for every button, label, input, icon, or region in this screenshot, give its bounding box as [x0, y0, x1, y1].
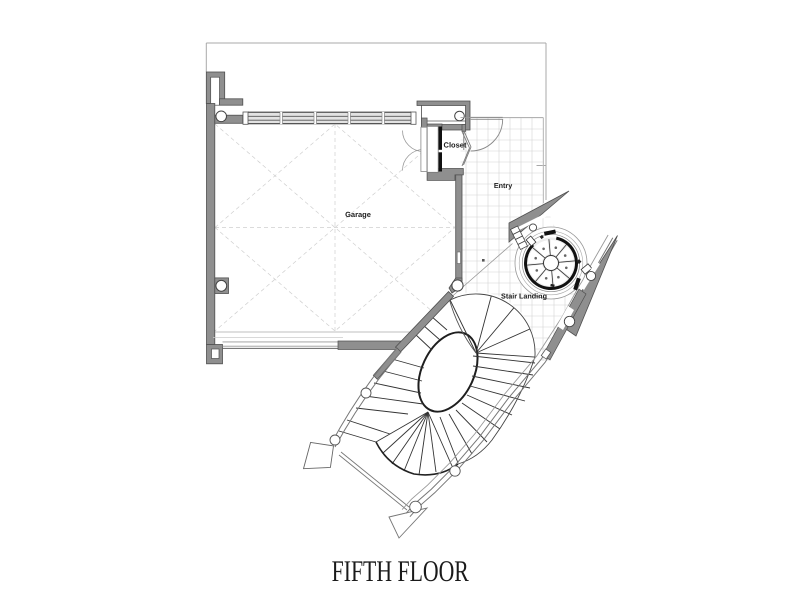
svg-text:Closet: Closet: [444, 141, 467, 150]
svg-text:Entry: Entry: [494, 181, 512, 190]
svg-text:Stair Landing: Stair Landing: [501, 292, 547, 301]
svg-text:Garage: Garage: [345, 210, 371, 219]
svg-text:FIFTH FLOOR: FIFTH FLOOR: [332, 555, 469, 588]
